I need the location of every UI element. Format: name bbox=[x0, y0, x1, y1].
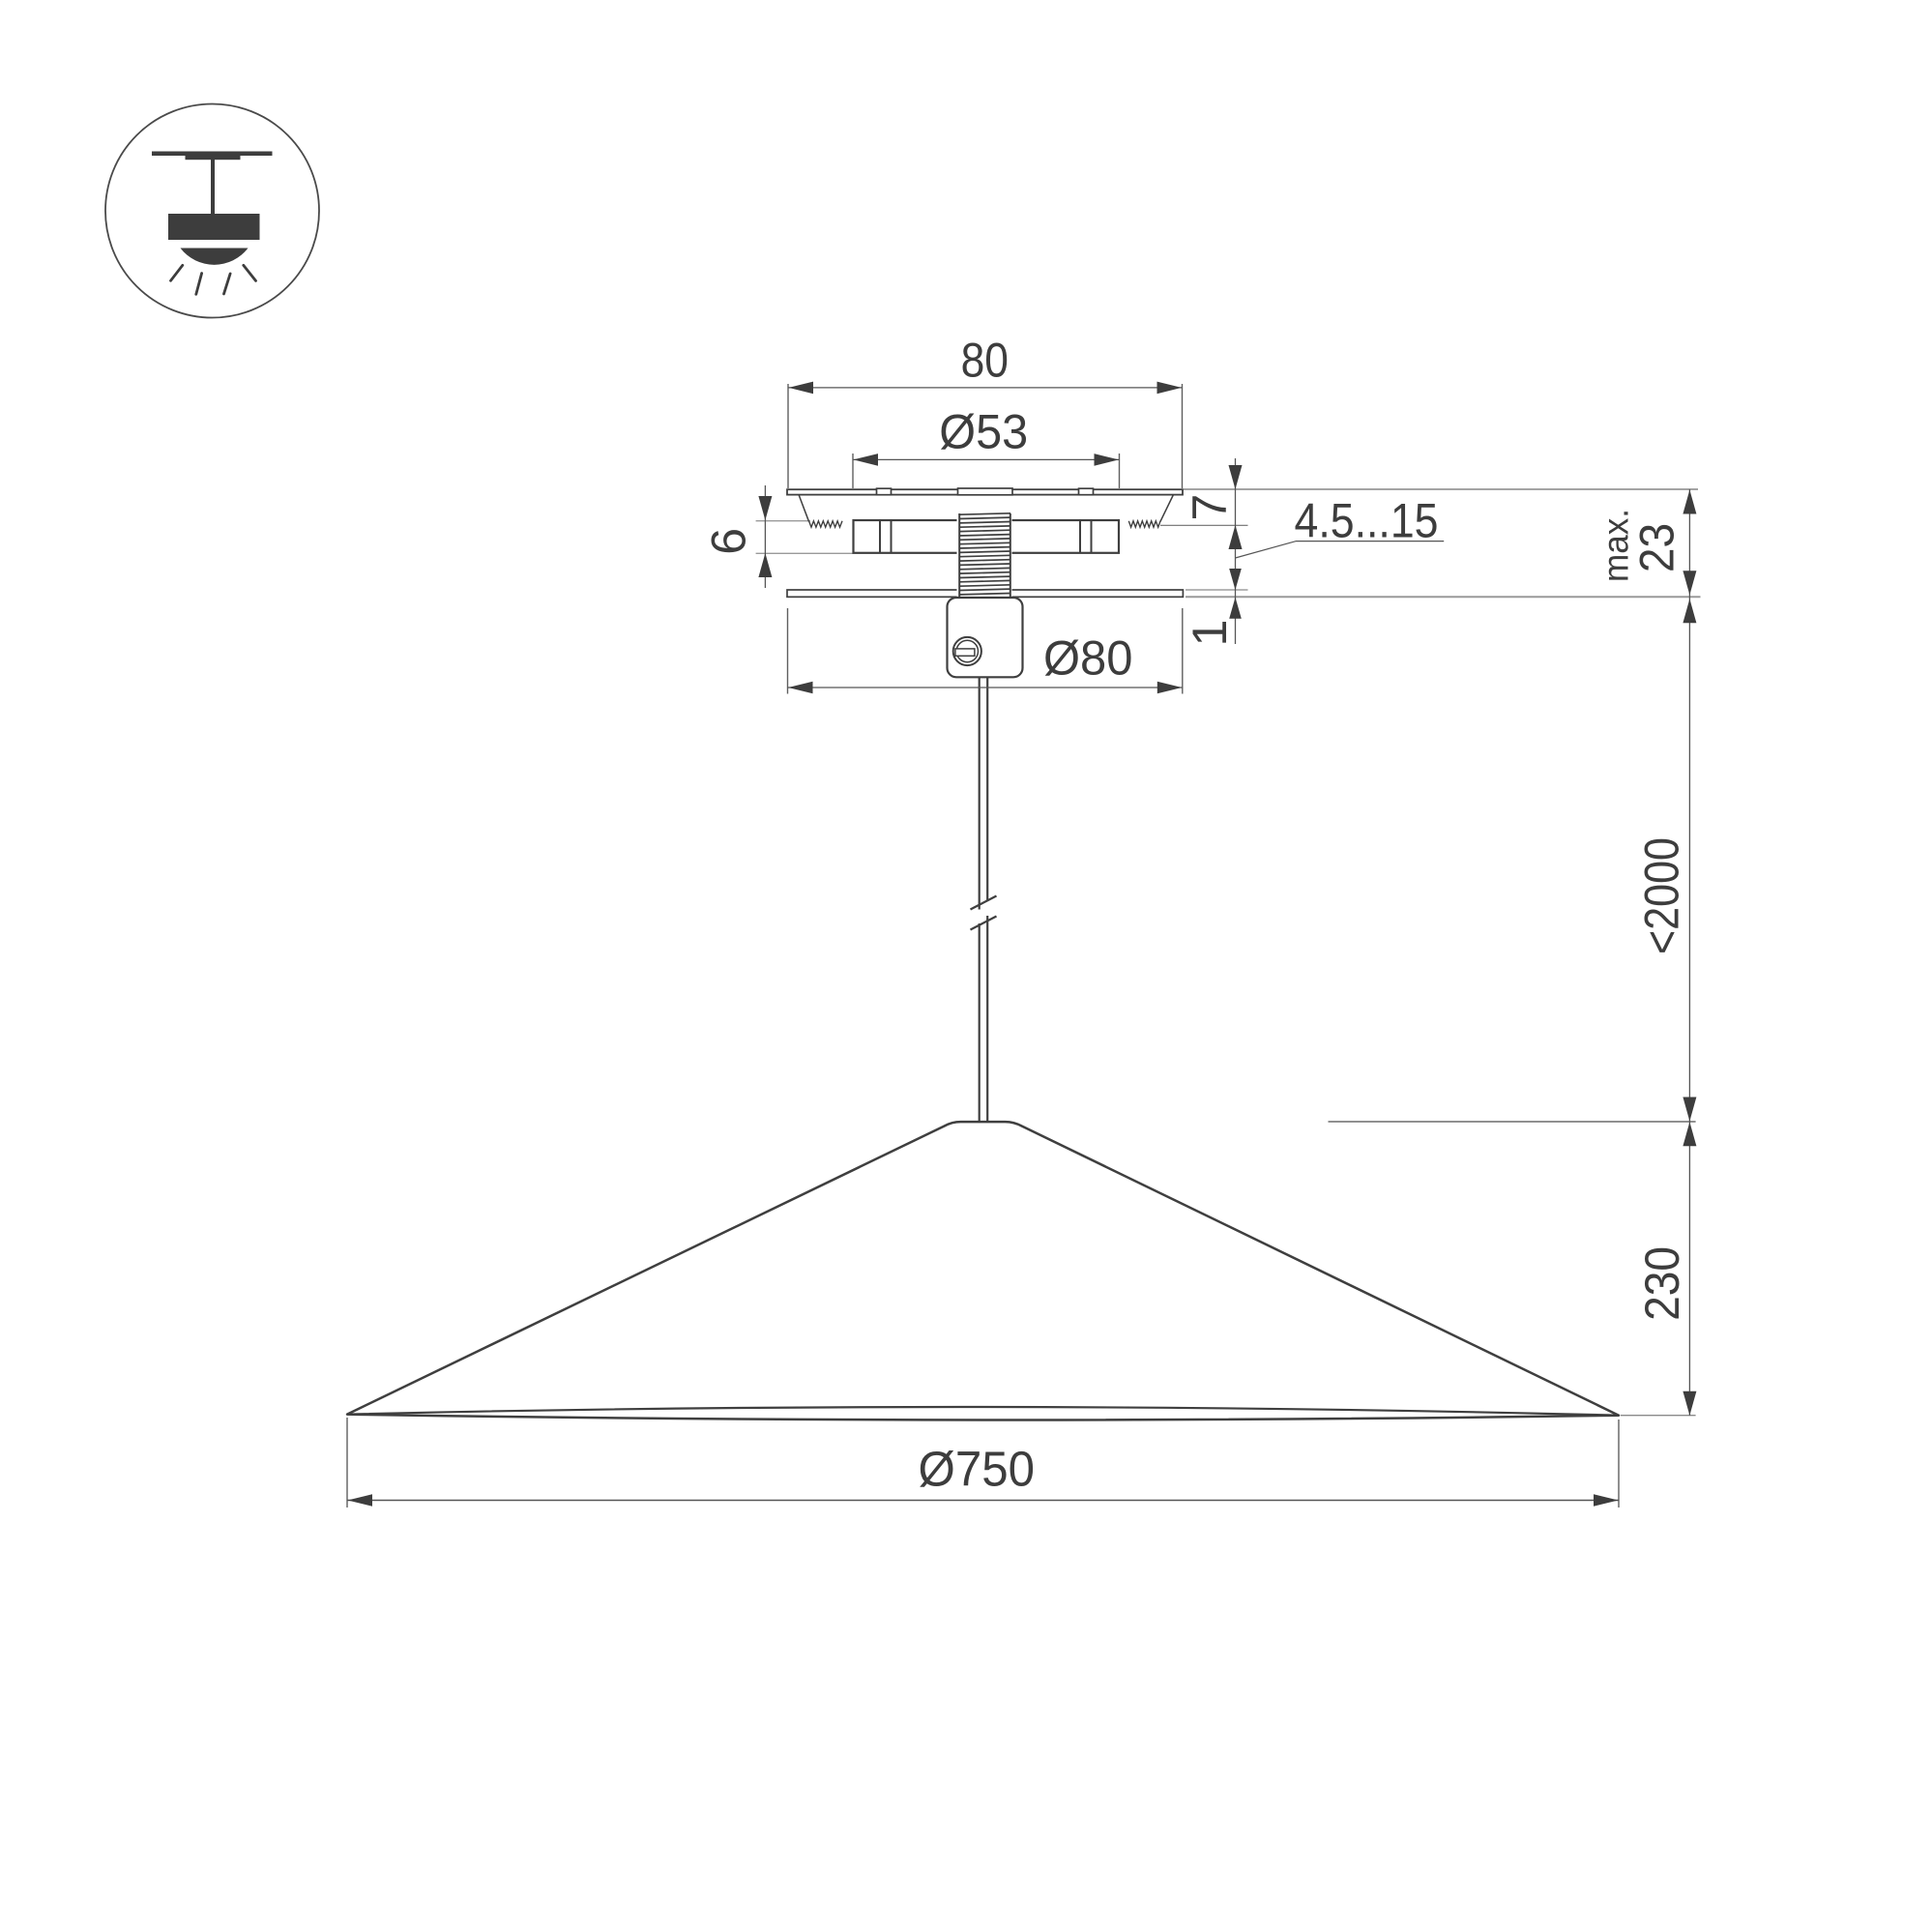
svg-text:Ø53: Ø53 bbox=[939, 405, 1028, 459]
svg-text:230: 230 bbox=[1635, 1246, 1689, 1321]
svg-text:6: 6 bbox=[702, 528, 756, 555]
svg-text:Ø750: Ø750 bbox=[919, 1441, 1036, 1496]
svg-text:7: 7 bbox=[1183, 494, 1237, 521]
svg-text:80: 80 bbox=[961, 334, 1009, 388]
svg-text:Ø80: Ø80 bbox=[1043, 631, 1133, 686]
svg-text:23: 23 bbox=[1630, 523, 1684, 572]
svg-text:4.5...15: 4.5...15 bbox=[1295, 493, 1439, 547]
svg-text:1: 1 bbox=[1183, 620, 1237, 647]
svg-text:<2000: <2000 bbox=[1634, 837, 1688, 954]
